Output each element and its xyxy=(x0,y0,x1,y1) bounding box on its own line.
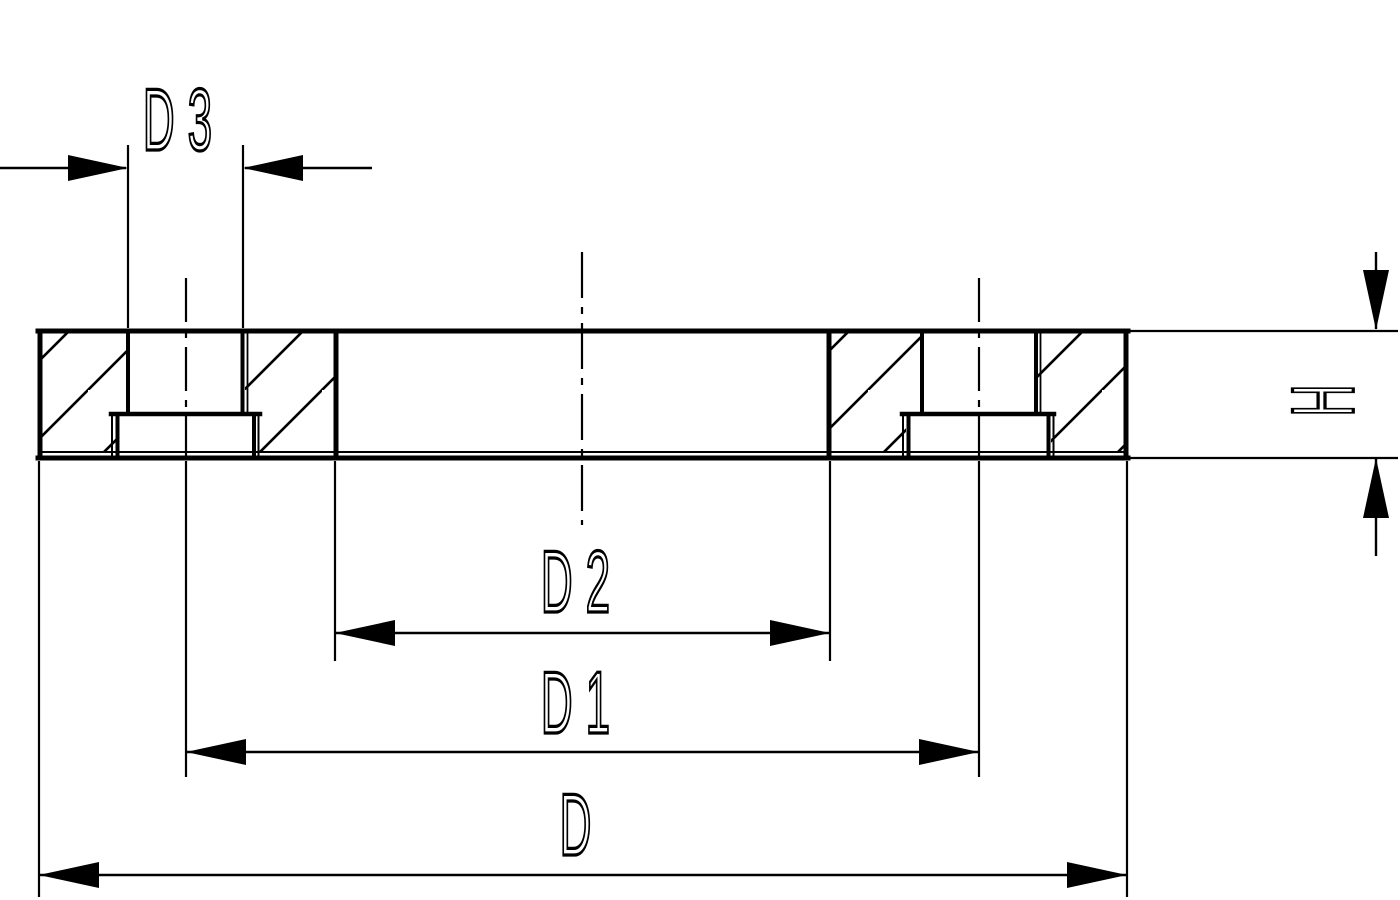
arrowhead xyxy=(770,620,830,646)
hatch-region-left-web xyxy=(40,333,126,452)
drawing-root-group: D3 H D2 xyxy=(0,70,1398,897)
dim-label-d1: D1 xyxy=(541,653,623,752)
dim-label-d: D xyxy=(560,775,605,874)
arrowhead xyxy=(39,862,99,888)
dim-label-d2: D2 xyxy=(541,532,623,631)
flange-section-technical-drawing: D3 H D2 xyxy=(0,0,1400,900)
dim-label-h: H xyxy=(1273,372,1372,417)
arrowhead xyxy=(1067,862,1127,888)
arrowhead xyxy=(243,155,303,181)
dim-label-d3: D3 xyxy=(143,70,225,169)
arrowhead xyxy=(186,739,246,765)
dimension-h: H xyxy=(1129,252,1398,556)
arrowhead xyxy=(335,620,395,646)
hatch-region-right-web xyxy=(1038,333,1124,452)
arrowhead xyxy=(1363,270,1389,330)
arrowhead xyxy=(1363,458,1389,518)
arrowhead xyxy=(919,739,979,765)
arrowhead xyxy=(68,155,128,181)
